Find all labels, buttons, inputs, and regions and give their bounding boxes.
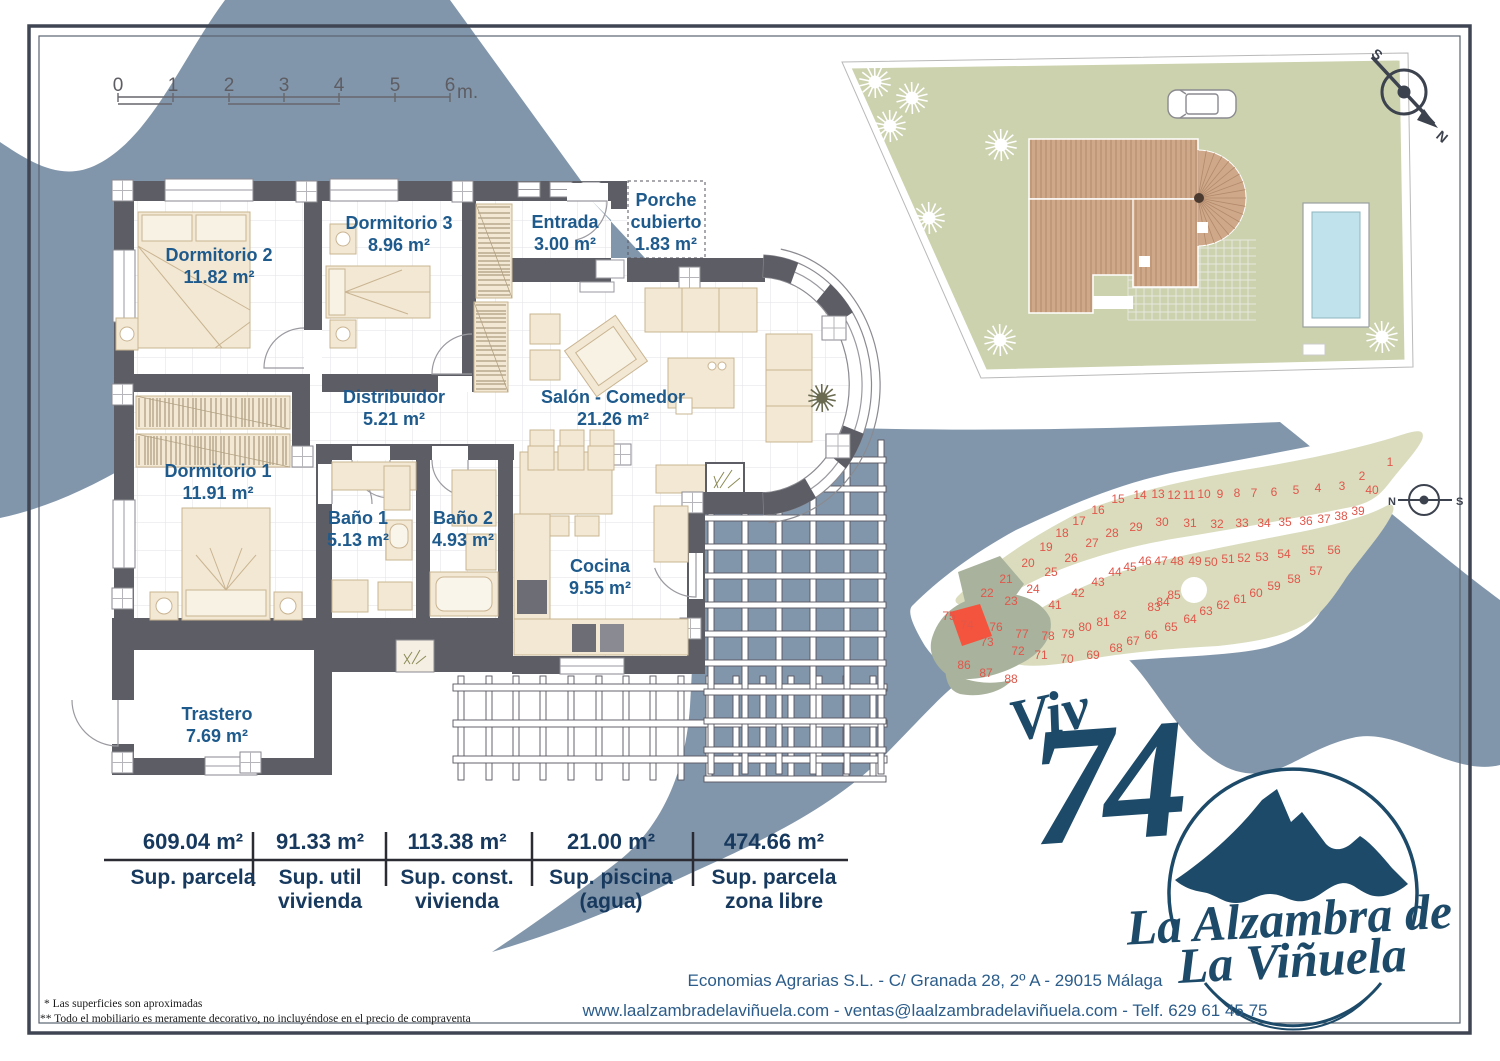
svg-text:4: 4: [334, 75, 345, 96]
svg-text:20: 20: [1021, 556, 1035, 570]
svg-text:61: 61: [1233, 592, 1247, 606]
svg-text:46: 46: [1138, 554, 1152, 568]
svg-text:Economias Agrarias S.L. - C/ G: Economias Agrarias S.L. - C/ Granada 28,…: [688, 971, 1163, 990]
svg-text:Sup. parcela: Sup. parcela: [131, 866, 256, 889]
svg-text:16: 16: [1091, 503, 1105, 517]
svg-text:(agua): (agua): [580, 890, 643, 913]
svg-text:Baño 15.13 m²: Baño 15.13 m²: [327, 508, 389, 550]
svg-text:2: 2: [224, 75, 235, 96]
svg-text:86: 86: [957, 658, 971, 672]
svg-text:Entrada3.00 m²: Entrada3.00 m²: [531, 212, 599, 254]
svg-text:34: 34: [1257, 516, 1271, 530]
svg-text:35: 35: [1278, 515, 1292, 529]
svg-text:50: 50: [1204, 555, 1218, 569]
svg-text:57: 57: [1309, 564, 1323, 578]
svg-text:33: 33: [1235, 516, 1249, 530]
svg-text:21: 21: [999, 572, 1013, 586]
svg-text:S: S: [1456, 496, 1463, 508]
svg-text:Sup. util: Sup. util: [279, 866, 362, 889]
svg-text:5: 5: [1293, 483, 1300, 497]
svg-text:60: 60: [1249, 586, 1263, 600]
svg-text:73: 73: [980, 635, 994, 649]
svg-text:11: 11: [1183, 488, 1196, 502]
svg-text:69: 69: [1086, 648, 1100, 662]
svg-text:26: 26: [1064, 551, 1078, 565]
svg-text:42: 42: [1071, 586, 1085, 600]
svg-text:76: 76: [989, 620, 1003, 634]
svg-text:74: 74: [960, 618, 974, 632]
svg-text:70: 70: [1060, 652, 1074, 666]
svg-text:Trastero7.69 m²: Trastero7.69 m²: [181, 704, 252, 746]
svg-text:9: 9: [1217, 487, 1224, 501]
svg-text:45: 45: [1123, 560, 1137, 574]
svg-text:24: 24: [1026, 582, 1040, 596]
svg-text:7: 7: [1251, 486, 1258, 500]
svg-text:71: 71: [1034, 648, 1048, 662]
svg-text:43: 43: [1091, 575, 1105, 589]
svg-text:474.66 m²: 474.66 m²: [724, 829, 824, 854]
svg-text:21.00 m²: 21.00 m²: [567, 829, 655, 854]
svg-text:40: 40: [1365, 483, 1379, 497]
svg-text:18: 18: [1055, 526, 1069, 540]
svg-text:67: 67: [1126, 634, 1140, 648]
svg-text:52: 52: [1237, 551, 1251, 565]
svg-text:64: 64: [1183, 612, 1197, 626]
svg-text:29: 29: [1129, 520, 1143, 534]
svg-text:78: 78: [1041, 629, 1055, 643]
svg-text:62: 62: [1216, 598, 1230, 612]
svg-text:30: 30: [1155, 515, 1169, 529]
svg-text:4: 4: [1315, 481, 1322, 495]
svg-text:12: 12: [1167, 488, 1181, 502]
svg-text:zona libre: zona libre: [725, 890, 823, 913]
svg-text:5: 5: [390, 75, 401, 96]
svg-text:80: 80: [1078, 620, 1092, 634]
svg-text:3: 3: [1339, 479, 1346, 493]
svg-text:59: 59: [1267, 579, 1281, 593]
svg-text:79: 79: [1061, 627, 1075, 641]
svg-text:77: 77: [1015, 627, 1029, 641]
svg-text:55: 55: [1301, 543, 1315, 557]
svg-text:Baño 24.93 m²: Baño 24.93 m²: [432, 508, 494, 550]
svg-text:8: 8: [1234, 486, 1241, 500]
svg-text:31: 31: [1183, 516, 1197, 530]
svg-text:Cocina9.55 m²: Cocina9.55 m²: [569, 556, 631, 598]
svg-text:1: 1: [1387, 455, 1394, 469]
svg-text:25: 25: [1044, 565, 1058, 579]
svg-text:6: 6: [1271, 485, 1278, 499]
svg-text:15: 15: [1111, 492, 1125, 506]
svg-text:88: 88: [1004, 672, 1018, 686]
svg-text:74: 74: [1023, 683, 1189, 881]
svg-text:49: 49: [1188, 554, 1202, 568]
svg-text:vivienda: vivienda: [415, 890, 499, 913]
svg-text:53: 53: [1255, 550, 1269, 564]
svg-text:75: 75: [942, 609, 956, 623]
svg-text:Sup. const.: Sup. const.: [400, 866, 513, 889]
svg-text:609.04 m²: 609.04 m²: [143, 829, 243, 854]
svg-text:N: N: [1388, 496, 1396, 508]
svg-text:6: 6: [445, 75, 456, 96]
svg-text:vivienda: vivienda: [278, 890, 362, 913]
svg-text:23: 23: [1004, 594, 1018, 608]
svg-text:37: 37: [1317, 512, 1331, 526]
svg-text:13: 13: [1151, 487, 1165, 501]
svg-text:14: 14: [1133, 488, 1147, 502]
svg-text:Sup. piscina: Sup. piscina: [549, 866, 673, 889]
svg-text:56: 56: [1327, 543, 1341, 557]
svg-text:85: 85: [1167, 588, 1181, 602]
svg-text:Porchecubierto1.83 m²: Porchecubierto1.83 m²: [630, 190, 701, 254]
svg-text:41: 41: [1048, 598, 1062, 612]
svg-text:39: 39: [1351, 504, 1365, 518]
svg-text:58: 58: [1287, 572, 1301, 586]
svg-text:m.: m.: [457, 82, 478, 103]
svg-text:1: 1: [168, 75, 179, 96]
svg-text:www.laalzambradelaviñuela.com: www.laalzambradelaviñuela.com - ventas@l…: [581, 1001, 1267, 1020]
svg-text:54: 54: [1277, 547, 1291, 561]
svg-text:32: 32: [1210, 517, 1224, 531]
svg-text:65: 65: [1164, 620, 1178, 634]
svg-text:* Las superficies son aproxima: * Las superficies son aproximadas: [44, 998, 203, 1010]
svg-text:47: 47: [1154, 554, 1168, 568]
svg-text:87: 87: [979, 666, 993, 680]
svg-text:36: 36: [1299, 514, 1313, 528]
svg-text:51: 51: [1221, 552, 1235, 566]
svg-text:2: 2: [1359, 469, 1366, 483]
svg-text:44: 44: [1108, 565, 1122, 579]
svg-text:72: 72: [1011, 644, 1025, 658]
svg-text:81: 81: [1096, 615, 1110, 629]
svg-text:63: 63: [1199, 604, 1213, 618]
svg-text:3: 3: [279, 75, 290, 96]
svg-text:17: 17: [1072, 514, 1086, 528]
svg-text:113.38 m²: 113.38 m²: [407, 829, 506, 854]
svg-text:48: 48: [1170, 554, 1184, 568]
svg-text:19: 19: [1039, 540, 1053, 554]
svg-text:68: 68: [1109, 641, 1123, 655]
svg-text:38: 38: [1334, 509, 1348, 523]
svg-text:27: 27: [1085, 536, 1099, 550]
svg-text:** Todo el mobiliario es meram: ** Todo el mobiliario es meramente decor…: [40, 1013, 471, 1025]
svg-text:22: 22: [980, 586, 994, 600]
svg-text:Sup. parcela: Sup. parcela: [712, 866, 837, 889]
svg-text:91.33 m²: 91.33 m²: [276, 829, 364, 854]
svg-text:10: 10: [1197, 487, 1211, 501]
svg-text:82: 82: [1113, 608, 1127, 622]
svg-text:0: 0: [113, 75, 124, 96]
svg-text:28: 28: [1105, 526, 1119, 540]
svg-text:66: 66: [1144, 628, 1158, 642]
